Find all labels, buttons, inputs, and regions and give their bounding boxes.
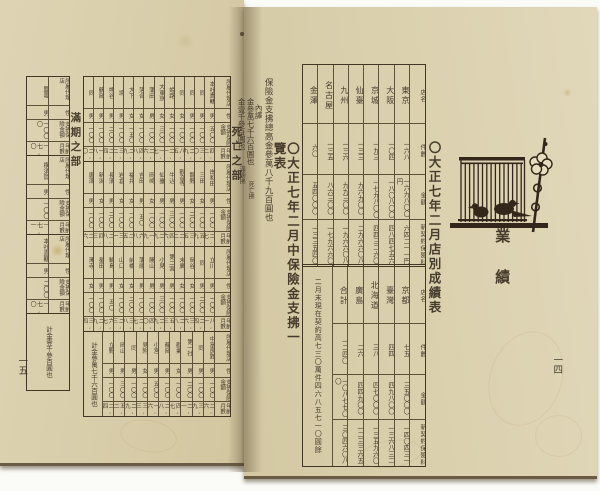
death-record-column: 蒲田男一〇〇二,六 — [144, 77, 154, 161]
column-header: 金額 — [410, 374, 425, 419]
column-header: 店名 — [410, 265, 425, 323]
death-record-column: 立川男一〇〇八,一 — [205, 247, 215, 331]
period-cell: 二,三 — [114, 316, 123, 331]
breakdown-tag: 死亡拂 — [247, 181, 254, 199]
death-record-column: 星田男一〇〇二,九 — [94, 247, 104, 331]
agency-cell: 立川 — [205, 247, 214, 278]
field-value: 横須賀 — [27, 156, 48, 184]
amount-cell: 一六九八〇〇円 — [395, 174, 409, 219]
left-page-title: 〇大正七年二月中保險金支拂一覽表 — [272, 142, 299, 357]
store-name-cell: 京城 — [364, 65, 378, 123]
breakdown-line-death: 金參萬七千六百圓也 死亡拂 — [246, 98, 254, 286]
death-record-column: 同女一〇〇八,五 — [175, 77, 185, 161]
sex-cell: 男 — [165, 278, 174, 292]
period-cell: 二,六 — [204, 401, 214, 416]
store-record-column: 仙臺一三三九六九〇〇二九六六〇八 — [349, 65, 364, 266]
period-cell: 二,五 — [124, 231, 133, 246]
column-header: 金額 — [410, 174, 425, 219]
amount-cell: 二〇〇 — [181, 377, 191, 401]
agency-cell: 蒲田 — [144, 77, 153, 108]
death-record-column: 末廣女一〇〇二,八 — [175, 247, 185, 331]
amount-cell: 一〇〇 — [94, 122, 103, 146]
column-header: 年齡月數 — [215, 146, 230, 161]
amount-cell: 五〇 — [134, 207, 143, 231]
amount-cell: 一〇〇 — [114, 292, 123, 316]
sex-cell: 男 — [114, 108, 123, 122]
premium-cell: 三〇四六〇八 — [333, 419, 347, 466]
agency-cell: 落合 — [134, 77, 143, 108]
column-header: 性 — [215, 193, 230, 207]
column-header: 所屬代理店 — [215, 162, 230, 193]
period-cell: 五,三 — [165, 316, 174, 331]
sex-cell: 男 — [205, 108, 214, 122]
store-record-column: 廣島二六四四九〇〇一二三三六五 — [348, 265, 363, 466]
amount-cell: 四九八〇〇 — [379, 374, 393, 419]
sex-cell: 女 — [137, 363, 147, 377]
period-cell: 八,五 — [175, 146, 184, 161]
premium-cell: 六四二一一円 — [395, 219, 409, 266]
death-record-column: 牛込男三〇〇四,六 — [165, 162, 175, 246]
agency-cell: 長濱 — [104, 162, 113, 193]
field-value: 二〇〇 — [27, 278, 48, 299]
store-name-cell: 臺灣 — [379, 265, 393, 323]
sex-cell: 男 — [94, 108, 103, 122]
agency-cell: 同 — [84, 77, 93, 108]
column-header: 年齡月數 — [215, 231, 230, 246]
period-cell: 四,二 — [205, 146, 214, 161]
sex-cell: 女 — [124, 108, 133, 122]
column-header: 支拂保險金額 — [215, 122, 230, 146]
period-cell: 二,〇 — [84, 146, 93, 161]
sex-cell: 女 — [144, 193, 153, 207]
store-record-column: 臺灣四四四九八〇〇一三六八三二 — [379, 265, 394, 466]
maturity-field-row: 支拂保險金額一〇〇〇 — [27, 119, 69, 141]
period-cell: 三,六 — [185, 316, 194, 331]
store-record-column: 大阪一〇四一八〇八〇〇四八四七五六 — [379, 65, 394, 266]
premium-cell: 一四〇四三一 — [395, 419, 409, 466]
sex-cell: 男 — [134, 278, 143, 292]
agency-cell: 同 — [125, 332, 135, 363]
agency-cell: 小見 — [155, 247, 164, 278]
period-cell: 三,〇 — [195, 146, 204, 161]
perf-header-column: 店名件數金額新契約保險料 — [410, 265, 425, 466]
sex-cell: 男 — [175, 193, 184, 207]
column-header: 件數 — [410, 323, 425, 374]
period-cell: 三,一 — [114, 231, 123, 246]
amount-cell: 一〇〇 — [185, 122, 194, 146]
agency-cell: 牛込 — [165, 162, 174, 193]
death-record-column: 同男一〇〇二,九 — [125, 332, 136, 416]
agency-cell: 唐津 — [84, 162, 93, 193]
agency-cell: 吉田 — [134, 162, 143, 193]
field-value: 一〇〇 — [27, 199, 48, 220]
maturity-field-row: 所屬代理店横須賀 — [27, 156, 69, 184]
count-cell: 二六 — [348, 323, 362, 374]
right-page-title: 〇大正七年二月店別成績表 — [427, 141, 441, 351]
death-record-column: 同男一〇〇三,九 — [193, 332, 204, 416]
left-page-number: 一五 — [16, 356, 26, 375]
period-cell: 四,〇 — [144, 316, 153, 331]
death-record-column: 同男二〇〇二,四 — [195, 247, 205, 331]
amount-cell: 一〇〇 — [193, 377, 203, 401]
amount-cell: 二〇〇 — [104, 122, 113, 146]
amount-cell: 一〇八七七〇〇 — [333, 374, 347, 419]
amount-cell: 五〇〇 — [205, 122, 214, 146]
field-value: 男 — [27, 264, 48, 277]
agency-cell: 蒲原 — [134, 247, 143, 278]
death-total-text: 計金參萬七千六百圓也 — [89, 342, 96, 407]
sex-cell: 女 — [94, 193, 103, 207]
sex-cell: 男 — [125, 363, 135, 377]
death-table-band: 所屬代理店性支拂保險金額年齡月數中富良野男一〇〇二,六同男一〇〇三,九第一社男二… — [84, 331, 230, 416]
period-cell: 二,八 — [175, 316, 184, 331]
premium-cell: 四四三二六〇 — [364, 219, 378, 266]
amount-cell: 一〇〇 — [137, 377, 147, 401]
period-cell: 二,九 — [124, 146, 133, 161]
period-cell: 六,七 — [104, 316, 113, 331]
amount-cell: 一〇〇 — [175, 292, 184, 316]
death-table-band: 所屬代理店性支拂保險金額年齡月數岸和田男一〇〇二,七三田女一〇〇五,九龍野女二〇… — [84, 161, 230, 246]
amount-cell: 一〇〇 — [94, 292, 103, 316]
period-cell: 二,八 — [104, 231, 113, 246]
death-record-column: 熊谷男二〇〇二,四 — [104, 77, 114, 161]
column-header: 支拂保險金額 — [215, 377, 230, 401]
store-name-cell: 九州 — [334, 65, 348, 123]
sex-cell: 男 — [204, 363, 214, 377]
premium-cell: 四八四七五六 — [379, 219, 393, 266]
agency-cell: 岸和田 — [205, 162, 214, 193]
amount-cell: 一〇〇 — [195, 207, 204, 231]
death-record-column: 輪島男五〇六,七 — [104, 247, 114, 331]
agency-cell: 岡崎 — [144, 162, 153, 193]
amount-cell: 一七九八〇〇 — [364, 174, 378, 219]
sex-cell: 女 — [155, 108, 164, 122]
period-cell: 二,九 — [125, 401, 135, 416]
agency-cell: 澤寺 — [84, 247, 93, 278]
right-page-number: 一四 — [551, 355, 561, 374]
agency-cell: 同 — [185, 77, 194, 108]
sex-cell: 男 — [195, 108, 204, 122]
agency-cell: 同 — [193, 332, 203, 363]
store-record-column: 金澤六〇五四〇〇〇一三三五四〇 — [303, 65, 318, 266]
death-record-column: 本社直轄男五〇〇四,二 — [205, 77, 215, 161]
period-cell: 四,八 — [134, 146, 143, 161]
sex-cell: 男 — [144, 108, 153, 122]
amount-cell: 一〇〇 — [84, 207, 93, 231]
death-record-column: 三田女一〇〇五,九 — [195, 162, 205, 246]
amount-cell: 一〇〇 — [114, 122, 123, 146]
amount-cell: 一〇〇 — [124, 207, 133, 231]
count-cell: 一二四〇 — [333, 323, 347, 374]
amount-cell: 一〇〇 — [165, 122, 174, 146]
agency-cell: 見附 — [137, 332, 147, 363]
period-cell: 二,四 — [195, 316, 204, 331]
period-cell: 三,五 — [185, 231, 194, 246]
field-label: 所屬代理店 — [48, 77, 69, 105]
column-header: 年齡月數 — [215, 316, 230, 331]
agency-cell: 第一社 — [181, 332, 191, 363]
period-cell: 八,一 — [205, 316, 214, 331]
sex-cell: 男 — [159, 363, 169, 377]
death-record-column: 大下女一五〇二,九 — [124, 77, 134, 161]
death-payout-table: 所屬代理店性支拂保險金額年齡月數本社直轄男五〇〇四,二同男一〇〇三,〇同男一〇〇… — [83, 76, 231, 417]
field-label: 所屬代理店 — [48, 156, 69, 184]
field-value: 鹽竈 — [27, 77, 48, 105]
amount-cell: 一〇〇 — [84, 122, 93, 146]
death-record-column: 岡山男三〇〇五,二 — [114, 332, 125, 416]
death-record-column: 澤寺女一〇〇三,四 — [84, 247, 94, 331]
breakdown-label: 內譯 — [254, 104, 262, 119]
period-cell: 二,二 — [175, 231, 184, 246]
payout-total-note: 保險金支拂總高金參萬八千九百圓也 — [263, 78, 272, 266]
agency-cell: 境 — [114, 77, 123, 108]
store-record-column: 名古屋一三五八六三〇〇一七九六六〇 — [318, 65, 333, 266]
maturity-field-row: 年齡月數一七,一 — [27, 220, 69, 234]
sex-cell: 男 — [103, 363, 113, 377]
amount-cell: 一〇〇 — [195, 122, 204, 146]
sex-cell: 男 — [84, 193, 93, 207]
count-cell: 六〇 — [303, 123, 317, 174]
death-record-column: 蒲原男一〇〇二,七 — [134, 247, 144, 331]
column-header: 年齡月數 — [215, 401, 230, 416]
maturity-total-cell: 計金壹千參百圓也 — [27, 313, 69, 390]
band-header-column: 所屬代理店性支拂保險金額年齡月數 — [215, 332, 230, 416]
agency-cell: 仙臺 — [155, 162, 164, 193]
sex-cell: 男 — [193, 363, 203, 377]
column-header: 所屬代理店 — [215, 332, 230, 363]
death-record-column: 靜岡男一〇〇二,八 — [159, 332, 170, 416]
amount-cell: 一〇〇 — [84, 292, 93, 316]
field-value: 一〇〇〇 — [27, 120, 48, 141]
amount-cell: 一〇〇 — [175, 122, 184, 146]
period-cell: 一,九 — [144, 231, 153, 246]
amount-cell: 二〇〇 — [124, 292, 133, 316]
sex-cell: 男 — [165, 193, 174, 207]
amount-cell: 一〇〇 — [125, 377, 135, 401]
premium-cell: 二九六六〇八 — [349, 219, 363, 266]
store-name-cell: 合計 — [333, 265, 347, 323]
maturity-field-row: 性男 — [27, 263, 69, 277]
agency-cell: 岡谷 — [185, 247, 194, 278]
amount-cell: 一〇〇 — [159, 377, 169, 401]
period-cell: 一,六 — [148, 401, 158, 416]
death-record-column: 觀音寺男一〇〇二,二 — [175, 162, 185, 246]
death-record-column: 吉田男五〇六,八 — [134, 162, 144, 246]
column-header: 新契約保險料 — [410, 419, 425, 466]
field-label: 性 — [48, 185, 69, 198]
death-record-column: 境男一〇〇三,二 — [114, 77, 124, 161]
store-name-cell: 廣島 — [348, 265, 362, 323]
chapter-title: 業績 — [494, 228, 510, 310]
agency-cell: 鶴岡 — [94, 77, 103, 108]
period-cell: 四,三 — [94, 231, 103, 246]
amount-cell: 一〇〇 — [134, 292, 143, 316]
maturity-field-row: 性男 — [27, 105, 69, 119]
death-record-column: 姫路女一〇〇二,一 — [165, 77, 175, 161]
amount-cell: 三〇〇 — [155, 122, 164, 146]
sex-cell: 女 — [195, 193, 204, 207]
death-record-column: 中富良野男一〇〇二,六 — [204, 332, 215, 416]
death-record-column: 仙臺男一〇〇二,九 — [155, 162, 165, 246]
period-cell: 二,一 — [165, 146, 174, 161]
sex-cell: 男 — [195, 278, 204, 292]
death-total-cell: 計金參萬七千六百圓也 — [84, 332, 103, 416]
period-cell: 三,八 — [124, 316, 133, 331]
count-cell: 三八 — [364, 323, 378, 374]
agency-cell: 前橋 — [124, 247, 133, 278]
agency-cell: 第二宮 — [165, 247, 174, 278]
store-name-cell: 東京 — [395, 65, 409, 123]
death-record-column: 第一社男二〇〇二,一 — [181, 332, 192, 416]
field-value: 本社直轄 — [27, 235, 48, 263]
amount-cell: 一〇〇 — [175, 207, 184, 231]
amount-cell: 一〇〇 — [144, 207, 153, 231]
maturity-record: 所屬代理店横須賀性男支拂保險金額一〇〇年齡月數一七,一 — [27, 155, 69, 234]
perf-header-column: 店名件數金額新契約保險料 — [410, 65, 425, 266]
agency-cell: 勝山 — [144, 247, 153, 278]
agency-cell: 本社直轄 — [205, 77, 214, 108]
amount-cell: 一〇〇 — [170, 377, 180, 401]
death-record-column: 前橋女二〇〇三,八 — [124, 247, 134, 331]
amount-cell: 五〇 — [104, 292, 113, 316]
sex-cell: 男 — [94, 278, 103, 292]
amount-cell: 一五〇 — [124, 122, 133, 146]
sex-cell: 女 — [170, 363, 180, 377]
death-record-column: 岡谷女一〇〇三,六 — [185, 247, 195, 331]
maturity-total-text: 計金壹千參百圓也 — [44, 326, 51, 378]
field-value: 一七,〇 — [27, 300, 48, 313]
column-header: 件數 — [410, 123, 425, 174]
amount-cell: 五〇〇 — [148, 377, 158, 401]
field-label: 所屬代理店 — [48, 235, 69, 263]
death-table-band: 所屬代理店性支拂保險金額年齡月數本社直轄男五〇〇四,二同男一〇〇三,〇同男一〇〇… — [84, 77, 230, 161]
agency-cell: 星田 — [94, 247, 103, 278]
maturity-payout-table: 所屬代理店鹽竈性男支拂保險金額一〇〇〇年齡月數一七,〇所屬代理店横須賀性男支拂保… — [26, 76, 70, 391]
amount-cell: 一〇〇 — [204, 377, 214, 401]
field-value: 男 — [27, 106, 48, 119]
sex-cell: 男 — [104, 193, 113, 207]
column-header: 性 — [215, 278, 230, 292]
sex-cell: 女 — [185, 193, 194, 207]
agency-cell: 小宮 — [148, 332, 158, 363]
sex-cell: 男 — [205, 278, 214, 292]
amount-cell: 九六九〇〇 — [349, 174, 363, 219]
sex-cell: 男 — [144, 278, 153, 292]
period-cell: 五,九 — [195, 231, 204, 246]
field-label: 性 — [48, 106, 69, 119]
period-cell: 二,九 — [185, 146, 194, 161]
period-cell: 五,二 — [114, 401, 124, 416]
death-record-column: 鶴岡男一〇〇一,八 — [94, 77, 104, 161]
store-performance-table-upper: 店名件數金額新契約保險料東京一六八一六九八〇〇円六四二一一円大阪一〇四一八〇八〇… — [302, 64, 426, 267]
death-record-column: 同男一〇〇二,九 — [185, 77, 195, 161]
store-record-column: 北海道三八四七〇〇〇一三五九六〇 — [364, 265, 379, 466]
agency-cell: 中富良野 — [204, 332, 214, 363]
count-cell: 一三五 — [318, 123, 332, 174]
store-record-column: 東京一六八一六九八〇〇円六四二一一円 — [395, 65, 410, 266]
death-record-column: 唐津男一〇〇二,六 — [84, 162, 94, 246]
period-cell: 二,七 — [134, 316, 143, 331]
field-label: 年齡月數 — [48, 300, 69, 313]
death-record-column: 第二宮男一〇〇五,三 — [165, 247, 175, 331]
count-cell: 四四 — [379, 323, 393, 374]
amount-cell: 三〇〇 — [114, 377, 124, 401]
amount-cell: 一〇〇 — [114, 207, 123, 231]
death-record-column: 新潟女一〇〇四,三 — [94, 162, 104, 246]
book-spread-scan: 〇大正七年二月中保險金支拂一覽表 保險金支拂總高金參萬八千九百圓也 內譯 金參萬… — [0, 0, 600, 491]
period-cell: 四,六 — [165, 231, 174, 246]
sex-cell: 男 — [205, 193, 214, 207]
period-cell: 六,八 — [134, 231, 143, 246]
column-header: 支拂保險金額 — [215, 207, 230, 231]
death-record-column: 岸和田男一〇〇二,七 — [205, 162, 215, 246]
period-cell: 二,四 — [104, 146, 113, 161]
field-label: 年齡月數 — [48, 142, 69, 155]
sex-cell: 男 — [134, 193, 143, 207]
column-header: 店名 — [410, 65, 425, 123]
sex-cell: 男 — [104, 108, 113, 122]
store-name-cell: 大阪 — [379, 65, 393, 123]
sex-cell: 女 — [124, 193, 133, 207]
plum-blossom — [530, 153, 552, 175]
amount-cell: 一〇〇 — [144, 292, 153, 316]
breakdown-amount: 金參萬七千六百圓也 — [246, 98, 255, 166]
count-cell: 一〇四 — [379, 123, 393, 174]
column-header: 所屬代理店 — [215, 247, 230, 278]
sex-cell: 女 — [114, 193, 123, 207]
store-name-cell: 金澤 — [303, 65, 317, 123]
agency-cell: 同 — [195, 77, 204, 108]
band-header-column: 所屬代理店性支拂保險金額年齡月數 — [215, 77, 230, 161]
band-header-column: 所屬代理店性支拂保險金額年齡月數 — [215, 247, 230, 331]
sex-cell: 女 — [114, 278, 123, 292]
amount-cell: 三〇〇 — [165, 207, 174, 231]
death-record-column: 龍野女二〇〇三,五 — [185, 162, 195, 246]
agency-cell: 福井 — [124, 162, 133, 193]
amount-cell: 四七〇〇〇 — [364, 374, 378, 419]
maturity-field-row: 年齡月數一七,〇 — [27, 141, 69, 155]
death-record-column: 勝山男一〇〇四,〇 — [144, 247, 154, 331]
period-cell: 二,九 — [155, 231, 164, 246]
amount-cell: 三〇〇 — [155, 292, 164, 316]
store-record-column: 九州一三六九九三〇〇一九六六〇八 — [334, 65, 349, 266]
sex-cell: 女 — [185, 278, 194, 292]
sex-cell: 男 — [185, 108, 194, 122]
amount-cell: 一〇〇 — [165, 292, 174, 316]
premium-cell: 一三五九六〇 — [364, 419, 378, 466]
agency-cell: 大東京 — [155, 77, 164, 108]
agency-cell: 同 — [195, 247, 204, 278]
sex-cell: 女 — [124, 278, 133, 292]
month-end-summary-cell: 二月末現在契約高七三〇萬件四六八五七一〇圓餘 — [303, 265, 333, 466]
amount-cell: 五四〇〇〇 — [303, 174, 317, 219]
death-record-column: 大東京女三〇〇一,七 — [155, 77, 165, 161]
agency-cell: 勸業 — [170, 332, 180, 363]
amount-cell: 一〇〇 — [94, 207, 103, 231]
count-cell: 一三六 — [334, 123, 348, 174]
agency-cell: 姫路 — [165, 77, 174, 108]
field-label: 年齡月數 — [48, 221, 69, 234]
count-cell: 一九三 — [364, 123, 378, 174]
maturity-field-row: 所屬代理店本社直轄 — [27, 235, 69, 263]
agency-cell: 三田 — [195, 162, 204, 193]
death-record-column: 勸業女一〇〇四,七 — [170, 332, 181, 416]
maturity-record: 所屬代理店鹽竈性男支拂保險金額一〇〇〇年齡月數一七,〇 — [27, 77, 69, 155]
count-cell: 七五 — [395, 323, 409, 374]
period-cell: 二,四 — [103, 401, 113, 416]
agency-cell: 靜岡 — [159, 332, 169, 363]
sex-cell: 男 — [155, 193, 164, 207]
